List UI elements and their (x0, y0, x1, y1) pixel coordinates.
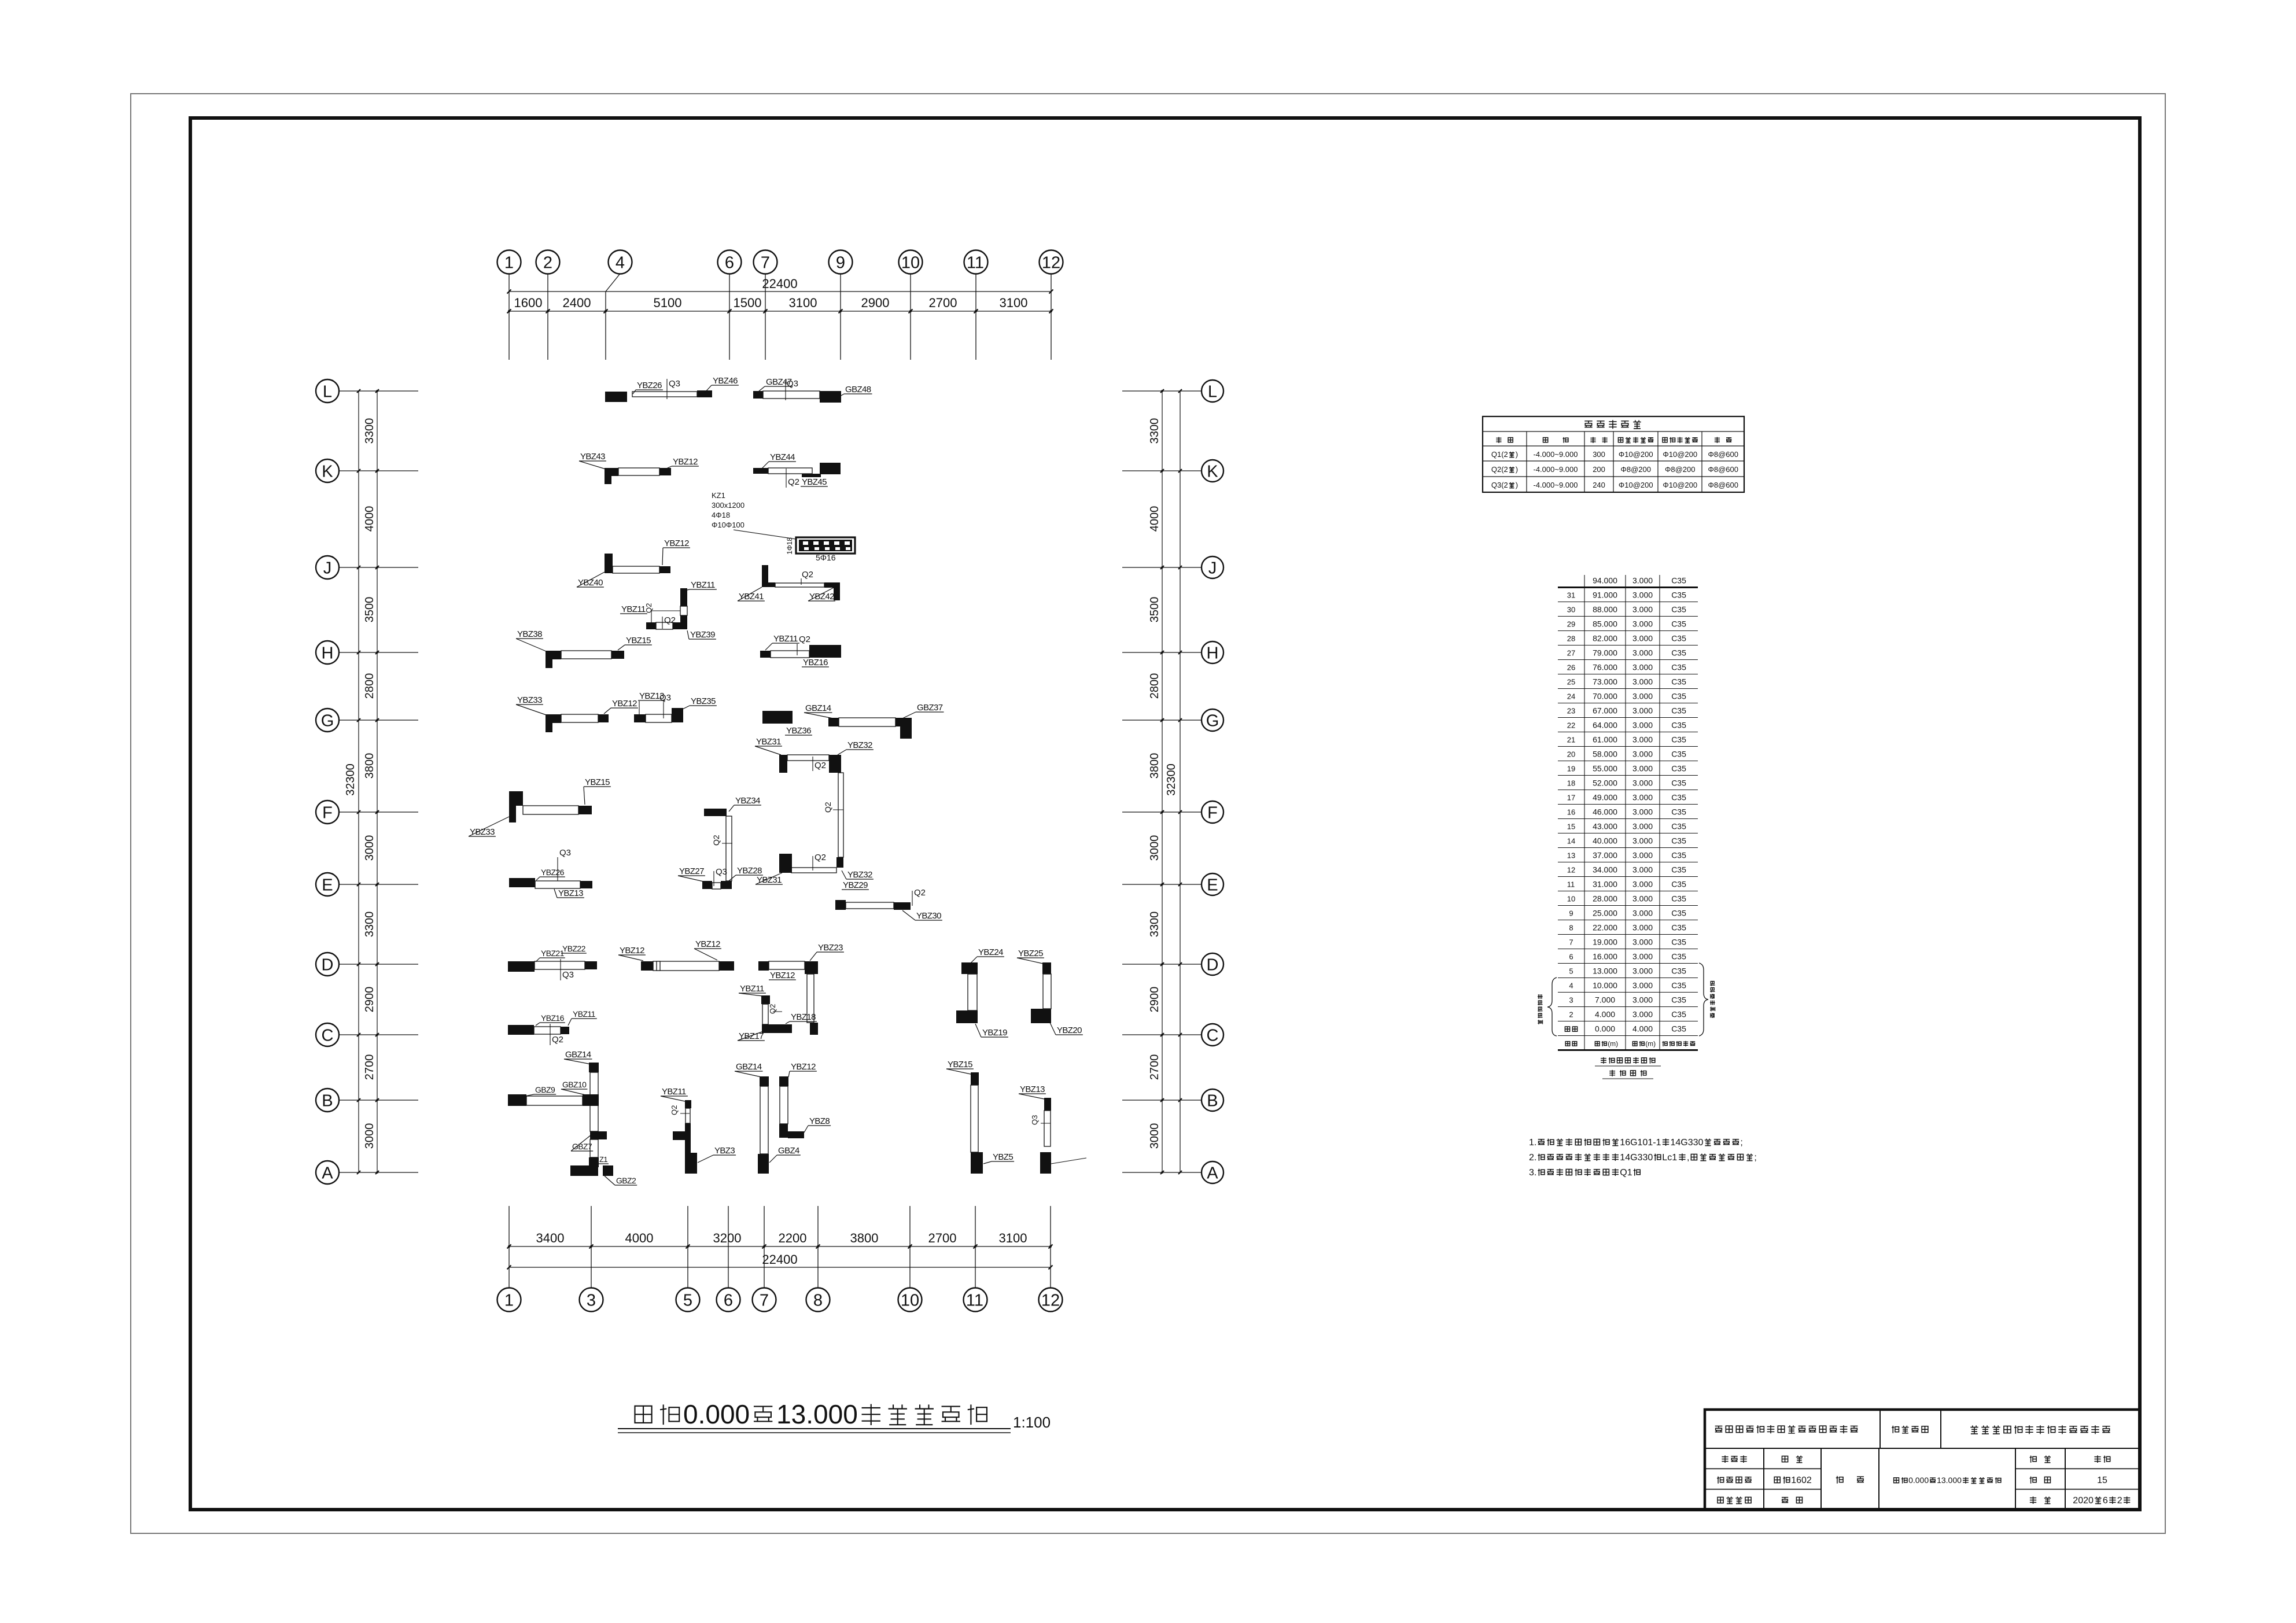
svg-text:-4.000~9.000: -4.000~9.000 (1534, 465, 1578, 474)
svg-text:30: 30 (1567, 606, 1575, 614)
svg-text:YBZ29: YBZ29 (843, 880, 868, 890)
svg-text:Q2: Q2 (768, 1004, 777, 1014)
svg-text:55.000: 55.000 (1593, 764, 1617, 773)
svg-text:19: 19 (1567, 765, 1575, 773)
svg-text:C35: C35 (1671, 851, 1686, 860)
svg-text:28: 28 (1567, 635, 1575, 643)
svg-text:YBZ15: YBZ15 (585, 777, 610, 787)
svg-text:1: 1 (504, 1291, 514, 1310)
svg-text:C35: C35 (1671, 677, 1686, 687)
svg-text:Q2: Q2 (788, 477, 799, 487)
svg-text:H: H (1207, 644, 1219, 662)
svg-text:C35: C35 (1671, 909, 1686, 918)
svg-text:7: 7 (760, 1291, 769, 1310)
svg-text:Q1(2: Q1(2 (1491, 450, 1508, 459)
svg-text:Q3: Q3 (559, 848, 571, 858)
svg-text:3.000: 3.000 (1632, 836, 1653, 846)
svg-text:YBZ30: YBZ30 (916, 911, 941, 921)
svg-text:): ) (1516, 450, 1518, 459)
svg-text:4: 4 (616, 253, 625, 272)
svg-text:Q2: Q2 (802, 570, 813, 580)
svg-text:Q2: Q2 (552, 1035, 563, 1045)
svg-text:16: 16 (1567, 808, 1575, 817)
svg-text:12: 12 (1567, 866, 1575, 875)
svg-text:C35: C35 (1671, 663, 1686, 672)
svg-text:14G330: 14G330 (1671, 1138, 1704, 1148)
svg-text:YBZ12: YBZ12 (673, 457, 698, 467)
svg-text:G: G (321, 711, 334, 730)
svg-text:YBZ13: YBZ13 (558, 888, 583, 898)
svg-text:5: 5 (683, 1291, 692, 1310)
svg-text:26: 26 (1567, 663, 1575, 672)
svg-text:31.000: 31.000 (1593, 880, 1617, 889)
svg-text:3.000: 3.000 (1632, 619, 1653, 629)
svg-text:11: 11 (966, 1291, 983, 1310)
svg-text:300: 300 (1593, 450, 1605, 459)
svg-text:13: 13 (1567, 851, 1575, 860)
svg-text:22400: 22400 (762, 1252, 797, 1267)
svg-text:82.000: 82.000 (1593, 634, 1617, 643)
svg-text:GBZ48: GBZ48 (845, 385, 871, 394)
svg-text:10.000: 10.000 (1593, 981, 1617, 990)
svg-text:B: B (1207, 1091, 1218, 1110)
svg-text:2: 2 (543, 253, 552, 272)
svg-text:2700: 2700 (929, 296, 957, 310)
svg-text:3800: 3800 (1148, 753, 1161, 779)
svg-text:3.000: 3.000 (1632, 591, 1653, 600)
svg-text:YBZ22: YBZ22 (562, 944, 586, 953)
svg-text:2.: 2. (1529, 1153, 1536, 1163)
svg-text:YBZ44: YBZ44 (770, 452, 795, 462)
svg-text:YBZ11: YBZ11 (691, 580, 715, 590)
svg-text:YBZ12: YBZ12 (695, 939, 720, 949)
svg-text:YBZ3: YBZ3 (714, 1146, 735, 1156)
svg-text:B: B (322, 1091, 333, 1110)
svg-text:13.000: 13.000 (1593, 967, 1617, 976)
svg-text:3.000: 3.000 (1632, 1010, 1653, 1019)
svg-text:D: D (1207, 956, 1219, 974)
svg-text:14: 14 (1567, 837, 1575, 846)
svg-text:3100: 3100 (999, 1231, 1027, 1245)
svg-text:Q3: Q3 (562, 970, 574, 980)
svg-text:3.000: 3.000 (1632, 807, 1653, 817)
svg-text:C35: C35 (1671, 1024, 1686, 1034)
svg-text:2900: 2900 (861, 296, 890, 310)
svg-text:Φ8@200: Φ8@200 (1665, 465, 1696, 474)
svg-text:2900: 2900 (1148, 987, 1161, 1013)
svg-text:3.000: 3.000 (1632, 677, 1653, 687)
svg-text:L: L (1208, 382, 1217, 401)
svg-text:13.000: 13.000 (1937, 1476, 1962, 1485)
svg-text:88.000: 88.000 (1593, 605, 1617, 614)
svg-text:3.000: 3.000 (1632, 995, 1653, 1005)
svg-text:16.000: 16.000 (1593, 952, 1617, 961)
svg-text:5: 5 (1569, 967, 1573, 976)
svg-text:C35: C35 (1671, 706, 1686, 715)
svg-text:YBZ40: YBZ40 (578, 578, 603, 588)
svg-text:31: 31 (1567, 591, 1575, 600)
svg-text:C35: C35 (1671, 923, 1686, 932)
svg-text:6: 6 (725, 253, 734, 272)
svg-text:D: D (322, 956, 334, 974)
svg-text:C: C (1207, 1026, 1219, 1045)
svg-text:C35: C35 (1671, 605, 1686, 614)
svg-text:12: 12 (1041, 1291, 1060, 1310)
svg-text:YBZ42: YBZ42 (809, 592, 834, 602)
svg-text:YBZ11: YBZ11 (740, 984, 764, 994)
svg-text:29: 29 (1567, 620, 1575, 629)
svg-text:YBZ31: YBZ31 (757, 875, 782, 885)
svg-text:Q2: Q2 (815, 853, 826, 862)
svg-text:K: K (322, 462, 333, 481)
svg-text:24: 24 (1567, 692, 1575, 701)
svg-text:13.000: 13.000 (776, 1399, 858, 1429)
svg-text:3.000: 3.000 (1632, 735, 1653, 744)
svg-text:Z1: Z1 (599, 1155, 607, 1164)
svg-text:3100: 3100 (1000, 296, 1028, 310)
svg-text:1500: 1500 (734, 296, 762, 310)
svg-text:Φ10@200: Φ10@200 (1619, 450, 1653, 459)
svg-text:9: 9 (1569, 909, 1573, 918)
svg-text:3.000: 3.000 (1632, 721, 1653, 730)
svg-text:1602: 1602 (1791, 1476, 1812, 1485)
svg-text:3.000: 3.000 (1632, 605, 1653, 614)
svg-text:YBZ12: YBZ12 (664, 538, 689, 548)
svg-text:3.000: 3.000 (1632, 822, 1653, 831)
svg-text:C35: C35 (1671, 894, 1686, 903)
svg-text:3.000: 3.000 (1632, 894, 1653, 903)
svg-text:0.000: 0.000 (1595, 1024, 1615, 1034)
svg-text:3300: 3300 (363, 418, 376, 444)
svg-text:YBZ16: YBZ16 (803, 658, 828, 667)
svg-text:GBZ9: GBZ9 (535, 1085, 555, 1094)
svg-text:3400: 3400 (536, 1231, 565, 1245)
svg-text:3.000: 3.000 (1632, 981, 1653, 990)
svg-text:Q2: Q2 (670, 1105, 679, 1115)
svg-text:G: G (1206, 711, 1219, 730)
svg-text:64.000: 64.000 (1593, 721, 1617, 730)
svg-text:15: 15 (1567, 822, 1575, 831)
svg-text:73.000: 73.000 (1593, 677, 1617, 687)
svg-text:C35: C35 (1671, 735, 1686, 744)
svg-text:37.000: 37.000 (1593, 851, 1617, 860)
svg-text:E: E (1207, 876, 1218, 894)
svg-text:KZ1: KZ1 (712, 491, 725, 500)
svg-text:A: A (1207, 1164, 1218, 1182)
svg-text:3800: 3800 (850, 1231, 879, 1245)
svg-text:YBZ12: YBZ12 (612, 699, 637, 709)
svg-text:2700: 2700 (1148, 1054, 1161, 1080)
svg-text:J: J (1208, 559, 1217, 577)
svg-text:3500: 3500 (1148, 597, 1161, 623)
svg-text:3.000: 3.000 (1632, 692, 1653, 701)
svg-text:YBZ45: YBZ45 (802, 477, 827, 487)
svg-text:3.000: 3.000 (1632, 576, 1653, 585)
svg-text:C35: C35 (1671, 880, 1686, 889)
svg-text:YBZ15: YBZ15 (948, 1060, 972, 1069)
svg-text:YBZ26: YBZ26 (541, 868, 565, 877)
svg-text:6: 6 (724, 1291, 733, 1310)
svg-text:15: 15 (2097, 1476, 2107, 1485)
svg-text:Q3: Q3 (659, 693, 671, 703)
svg-text:;: ; (1754, 1153, 1756, 1163)
svg-text:Q2: Q2 (644, 603, 653, 613)
svg-text:GBZ4: GBZ4 (778, 1146, 799, 1156)
svg-text:C35: C35 (1671, 764, 1686, 773)
svg-text:2400: 2400 (563, 296, 591, 310)
svg-text:3.000: 3.000 (1632, 880, 1653, 889)
svg-text:YBZ11: YBZ11 (773, 634, 798, 644)
svg-text:YBZ12: YBZ12 (620, 946, 644, 956)
svg-text:20: 20 (1567, 750, 1575, 759)
svg-text:C35: C35 (1671, 576, 1686, 585)
svg-text:C35: C35 (1671, 967, 1686, 976)
svg-text:J: J (323, 559, 332, 577)
svg-text:22: 22 (1567, 721, 1575, 730)
svg-text:3000: 3000 (363, 1123, 376, 1149)
svg-text:L: L (323, 382, 332, 401)
svg-text:Q2(2: Q2(2 (1491, 465, 1508, 474)
svg-text:YBZ11: YBZ11 (573, 1009, 596, 1019)
svg-text:70.000: 70.000 (1593, 692, 1617, 701)
svg-text:58.000: 58.000 (1593, 750, 1617, 759)
svg-text:Q2: Q2 (664, 615, 676, 625)
svg-text:28.000: 28.000 (1593, 894, 1617, 903)
svg-text:YBZ18: YBZ18 (791, 1012, 816, 1022)
svg-text:11: 11 (1567, 880, 1575, 889)
svg-text:1Φ18: 1Φ18 (786, 537, 794, 555)
svg-text:2900: 2900 (363, 987, 376, 1013)
svg-text:3000: 3000 (363, 835, 376, 861)
svg-text:YBZ32: YBZ32 (847, 870, 872, 880)
svg-text:32300: 32300 (1165, 763, 1178, 796)
svg-text:46.000: 46.000 (1593, 807, 1617, 817)
svg-text:E: E (322, 876, 333, 894)
svg-text:Q2: Q2 (914, 888, 926, 898)
svg-text:YBZ38: YBZ38 (517, 629, 542, 639)
svg-text:K: K (1207, 462, 1218, 481)
svg-text:Q2: Q2 (815, 761, 826, 770)
svg-text:25.000: 25.000 (1593, 909, 1617, 918)
svg-text:3.000: 3.000 (1632, 865, 1653, 875)
svg-text:C35: C35 (1671, 952, 1686, 961)
svg-text:300x1200: 300x1200 (712, 501, 745, 510)
svg-text:18: 18 (1567, 779, 1575, 788)
svg-text:C35: C35 (1671, 807, 1686, 817)
svg-text:3800: 3800 (363, 753, 376, 779)
svg-text:0.000: 0.000 (1908, 1476, 1929, 1485)
svg-text:A: A (322, 1164, 333, 1182)
svg-text:C35: C35 (1671, 750, 1686, 759)
svg-text:4: 4 (1569, 982, 1573, 990)
svg-text:(m): (m) (1608, 1040, 1618, 1048)
svg-text:3200: 3200 (713, 1231, 742, 1245)
svg-text:YBZ15: YBZ15 (626, 636, 651, 645)
svg-text:YBZ12: YBZ12 (770, 971, 795, 980)
svg-text:(m): (m) (1645, 1040, 1656, 1048)
svg-text:25: 25 (1567, 678, 1575, 687)
svg-text:GBZ14: GBZ14 (736, 1062, 762, 1072)
svg-text:Q3: Q3 (716, 867, 727, 877)
svg-text:3300: 3300 (1148, 912, 1161, 938)
svg-text:YBZ36: YBZ36 (786, 726, 811, 736)
svg-text:34.000: 34.000 (1593, 865, 1617, 875)
svg-text:): ) (1516, 465, 1518, 474)
svg-text:Φ8@200: Φ8@200 (1621, 465, 1652, 474)
svg-text:3: 3 (587, 1291, 596, 1310)
svg-text:3: 3 (1569, 996, 1573, 1005)
svg-text:79.000: 79.000 (1593, 648, 1617, 658)
svg-text:1:100: 1:100 (1013, 1414, 1051, 1431)
svg-text:8: 8 (813, 1291, 823, 1310)
svg-text:F: F (1207, 803, 1218, 822)
svg-text:3300: 3300 (1148, 418, 1161, 444)
svg-text:76.000: 76.000 (1593, 663, 1617, 672)
svg-text:10: 10 (901, 253, 920, 272)
svg-text:19.000: 19.000 (1593, 938, 1617, 947)
svg-text:3300: 3300 (363, 912, 376, 938)
svg-text:C35: C35 (1671, 619, 1686, 629)
svg-text:Q2: Q2 (823, 802, 832, 813)
svg-text:8: 8 (1569, 924, 1573, 932)
svg-text:,: , (1687, 1153, 1689, 1163)
svg-text:3.000: 3.000 (1632, 938, 1653, 947)
svg-text:C35: C35 (1671, 995, 1686, 1005)
svg-text:GBZ14: GBZ14 (805, 703, 831, 713)
svg-text:22400: 22400 (762, 276, 797, 291)
svg-text:Q3: Q3 (1030, 1115, 1039, 1125)
svg-text:3500: 3500 (363, 597, 376, 623)
svg-text:Q2: Q2 (799, 635, 810, 644)
svg-text:Q3: Q3 (787, 379, 798, 389)
svg-text:16G101-1: 16G101-1 (1620, 1138, 1661, 1148)
svg-text:40.000: 40.000 (1593, 836, 1617, 846)
svg-text:2700: 2700 (928, 1231, 957, 1245)
svg-text:YBZ23: YBZ23 (818, 943, 843, 953)
svg-text:C35: C35 (1671, 865, 1686, 875)
svg-text:3.000: 3.000 (1632, 793, 1653, 802)
svg-text:3.000: 3.000 (1632, 706, 1653, 715)
svg-text:YBZ26: YBZ26 (637, 381, 662, 390)
svg-text:21: 21 (1567, 736, 1575, 744)
svg-text:Φ8@600: Φ8@600 (1708, 465, 1739, 474)
svg-text:C35: C35 (1671, 591, 1686, 600)
svg-text:YBZ35: YBZ35 (691, 696, 716, 706)
svg-text:F: F (322, 803, 333, 822)
svg-text:YBZ33: YBZ33 (517, 695, 542, 705)
svg-text:1: 1 (504, 253, 514, 272)
svg-text:YBZ34: YBZ34 (735, 796, 760, 806)
svg-text:3.000: 3.000 (1632, 634, 1653, 643)
svg-text:GBZ2: GBZ2 (616, 1176, 636, 1185)
svg-text:3.000: 3.000 (1632, 750, 1653, 759)
svg-text:5100: 5100 (654, 296, 682, 310)
svg-text:17: 17 (1567, 794, 1575, 802)
svg-text:3.000: 3.000 (1632, 967, 1653, 976)
svg-text:YBZ11: YBZ11 (621, 604, 646, 614)
svg-text:C35: C35 (1671, 779, 1686, 788)
svg-text:94.000: 94.000 (1593, 576, 1617, 585)
svg-text:43.000: 43.000 (1593, 822, 1617, 831)
svg-text:C35: C35 (1671, 836, 1686, 846)
svg-text:YBZ32: YBZ32 (847, 740, 872, 750)
svg-text:YBZ33: YBZ33 (470, 827, 495, 837)
svg-text:4.000: 4.000 (1632, 1024, 1653, 1034)
svg-text:11: 11 (967, 253, 984, 272)
svg-text:61.000: 61.000 (1593, 735, 1617, 744)
svg-text:C35: C35 (1671, 648, 1686, 658)
svg-text:C35: C35 (1671, 1010, 1686, 1019)
svg-text:C35: C35 (1671, 793, 1686, 802)
svg-text:5Φ16: 5Φ16 (816, 553, 836, 562)
svg-text:32300: 32300 (344, 763, 357, 796)
svg-text:YBZ8: YBZ8 (809, 1116, 830, 1126)
svg-text:2700: 2700 (363, 1054, 376, 1080)
svg-text:7: 7 (1569, 938, 1573, 947)
svg-text:YBZ11: YBZ11 (662, 1087, 686, 1097)
svg-text:C35: C35 (1671, 634, 1686, 643)
svg-text:Q3: Q3 (669, 379, 680, 389)
svg-text:0.000: 0.000 (683, 1399, 750, 1429)
svg-text:2: 2 (2117, 1496, 2122, 1506)
svg-text:4Φ18: 4Φ18 (712, 511, 730, 519)
svg-text:Q1: Q1 (1620, 1168, 1632, 1178)
svg-text:Φ10Φ100: Φ10Φ100 (712, 521, 745, 529)
svg-text:Φ8@600: Φ8@600 (1708, 450, 1739, 459)
svg-text:2200: 2200 (779, 1231, 807, 1245)
svg-text:67.000: 67.000 (1593, 706, 1617, 715)
svg-text:): ) (1516, 481, 1518, 489)
svg-text:6: 6 (1569, 953, 1573, 961)
svg-text:85.000: 85.000 (1593, 619, 1617, 629)
svg-text:1600: 1600 (514, 296, 543, 310)
svg-text:YBZ28: YBZ28 (737, 866, 762, 876)
svg-text:Φ8@600: Φ8@600 (1708, 481, 1739, 489)
svg-text:Q3(2: Q3(2 (1491, 481, 1508, 489)
svg-text:YBZ19: YBZ19 (982, 1028, 1007, 1038)
svg-text:Φ10@200: Φ10@200 (1663, 450, 1697, 459)
svg-text:3.000: 3.000 (1632, 764, 1653, 773)
svg-text:49.000: 49.000 (1593, 793, 1617, 802)
svg-text:7.000: 7.000 (1595, 995, 1615, 1005)
svg-text:YBZ12: YBZ12 (791, 1062, 816, 1072)
svg-text:YBZ13: YBZ13 (1020, 1085, 1045, 1094)
svg-text:GBZ37: GBZ37 (917, 703, 943, 713)
svg-text:C35: C35 (1671, 692, 1686, 701)
svg-text:GBZ7: GBZ7 (572, 1142, 592, 1151)
svg-text:H: H (322, 644, 334, 662)
svg-text:200: 200 (1593, 465, 1605, 474)
svg-text:C35: C35 (1671, 981, 1686, 990)
svg-text:7: 7 (761, 253, 770, 272)
svg-text:91.000: 91.000 (1593, 591, 1617, 600)
svg-text:YBZ5: YBZ5 (993, 1152, 1013, 1162)
svg-text:2800: 2800 (1148, 673, 1161, 699)
svg-text:-4.000~9.000: -4.000~9.000 (1534, 481, 1578, 489)
svg-text:Lc1: Lc1 (1662, 1153, 1677, 1163)
svg-text:YBZ39: YBZ39 (690, 630, 715, 640)
svg-text:240: 240 (1593, 481, 1605, 489)
svg-text:3.000: 3.000 (1632, 952, 1653, 961)
svg-text:C: C (322, 1026, 334, 1045)
svg-text:4000: 4000 (363, 506, 376, 532)
svg-text:22.000: 22.000 (1593, 923, 1617, 932)
svg-text:1.: 1. (1529, 1138, 1536, 1148)
svg-text:4.000: 4.000 (1595, 1010, 1615, 1019)
svg-text:YBZ31: YBZ31 (756, 737, 781, 747)
svg-text:YBZ46: YBZ46 (713, 376, 738, 386)
svg-text:YBZ24: YBZ24 (978, 947, 1003, 957)
